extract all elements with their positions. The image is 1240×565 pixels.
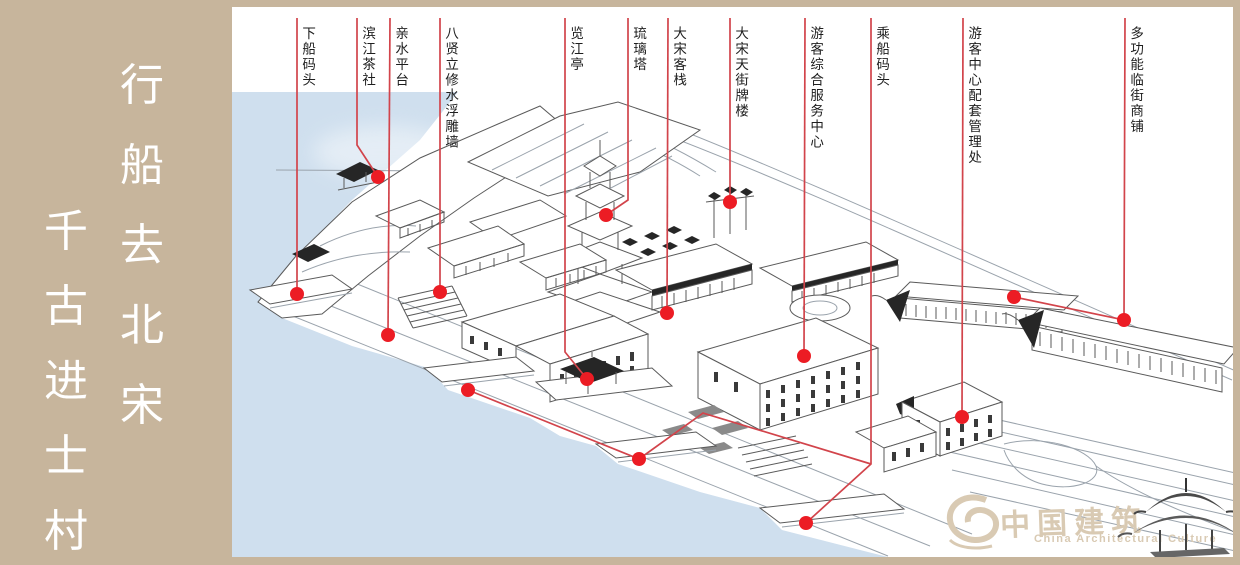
banner-column-left: 千古进士村 xyxy=(44,210,88,554)
callout-line-3 xyxy=(388,18,390,335)
left-banner: 行船去北宋 千古进士村 xyxy=(0,0,232,565)
callout-dot-12 xyxy=(1007,290,1021,304)
callout-label-1: 下船码头 xyxy=(300,26,314,88)
callout-label-6: 琉璃塔 xyxy=(631,26,645,73)
callout-label-11: 游客中心配套管理处 xyxy=(966,26,980,166)
callout-leader-lines xyxy=(290,18,1131,530)
callout-dot-12 xyxy=(1117,313,1131,327)
banner-char: 北 xyxy=(120,304,164,348)
corner-pavilion-drawing xyxy=(1118,478,1240,558)
callout-dot-10 xyxy=(632,452,646,466)
callout-label-12: 多功能临街商铺 xyxy=(1128,26,1142,135)
watermark-logo-swirl xyxy=(950,497,996,548)
callout-line-11 xyxy=(962,18,963,417)
tan-frame-bottom xyxy=(0,557,1240,565)
callout-label-8: 大宋天街牌楼 xyxy=(733,26,747,119)
callout-dot-8 xyxy=(723,195,737,209)
banner-char: 古 xyxy=(44,285,88,329)
tan-frame-top xyxy=(0,0,1240,7)
callout-dot-1 xyxy=(290,287,304,301)
callout-dot-6 xyxy=(599,208,613,222)
callout-label-7: 大宋客栈 xyxy=(671,26,685,88)
callout-line-7 xyxy=(667,18,668,313)
banner-char: 行 xyxy=(120,64,164,108)
callout-line-12 xyxy=(1014,18,1125,320)
banner-char: 村 xyxy=(44,510,88,554)
callout-line-9 xyxy=(804,18,805,356)
callout-dot-10 xyxy=(461,383,475,397)
callout-dot-4 xyxy=(433,285,447,299)
callout-dot-9 xyxy=(797,349,811,363)
callout-label-3: 亲水平台 xyxy=(393,26,407,88)
banner-char: 船 xyxy=(120,144,164,188)
banner-char: 千 xyxy=(44,210,88,254)
banner-char: 士 xyxy=(44,435,88,479)
callout-label-4: 八贤立修水浮雕墙 xyxy=(443,26,457,150)
banner-char: 宋 xyxy=(120,384,164,428)
callout-dot-3 xyxy=(381,328,395,342)
callout-dot-2 xyxy=(371,170,385,184)
callout-dot-10 xyxy=(799,516,813,530)
callout-label-5: 览江亭 xyxy=(568,26,582,73)
callout-dot-11 xyxy=(955,410,969,424)
callout-line-10 xyxy=(468,390,871,464)
callout-label-9: 游客综合服务中心 xyxy=(808,26,822,150)
banner-char: 进 xyxy=(44,360,88,404)
callout-dot-5 xyxy=(580,372,594,386)
callout-label-10: 乘船码头 xyxy=(874,26,888,88)
banner-char: 去 xyxy=(120,224,164,268)
callout-dot-7 xyxy=(660,306,674,320)
tan-frame-right xyxy=(1233,0,1240,565)
banner-column-right: 行船去北宋 xyxy=(120,64,164,428)
callout-line-6 xyxy=(606,18,628,215)
callout-label-2: 滨江茶社 xyxy=(360,26,374,88)
